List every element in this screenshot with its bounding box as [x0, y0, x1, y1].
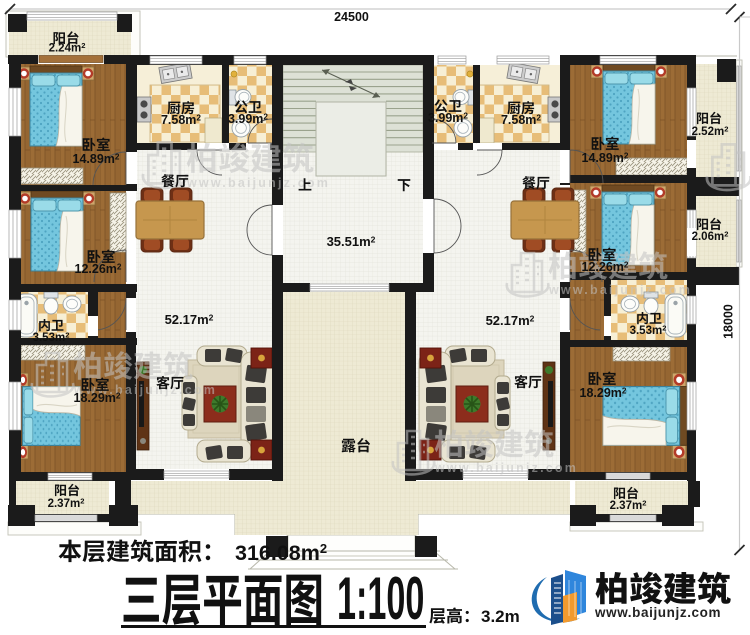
- svg-text:7.58m2: 7.58m2: [161, 113, 201, 127]
- svg-text:1:100: 1:100: [337, 566, 424, 632]
- svg-text:2.37m2: 2.37m2: [610, 499, 647, 513]
- svg-text:www.baijunjz.com: www.baijunjz.com: [594, 605, 721, 620]
- svg-text:18.29m2: 18.29m2: [74, 391, 121, 405]
- svg-text:18000: 18000: [722, 304, 736, 339]
- svg-text:12.26m2: 12.26m2: [582, 260, 629, 274]
- svg-text:52.17m2: 52.17m2: [486, 313, 535, 328]
- svg-text:www.baijunjz.com: www.baijunjz.com: [548, 283, 692, 297]
- svg-text:2.06m2: 2.06m2: [692, 230, 729, 244]
- svg-text:7.58m2: 7.58m2: [501, 113, 541, 127]
- svg-text:2.52m2: 2.52m2: [692, 125, 729, 139]
- svg-text:3.53m2: 3.53m2: [33, 331, 70, 345]
- svg-text:24500: 24500: [334, 10, 369, 24]
- svg-text:316.08m2: 316.08m2: [235, 541, 327, 565]
- svg-text:3.99m2: 3.99m2: [228, 112, 268, 126]
- svg-text:2.37m2: 2.37m2: [48, 497, 85, 511]
- svg-text:www.baijunjz.com: www.baijunjz.com: [434, 461, 578, 475]
- svg-text:14.89m2: 14.89m2: [582, 151, 629, 165]
- svg-text:3.2m: 3.2m: [481, 607, 520, 626]
- svg-text:3.99m2: 3.99m2: [428, 111, 468, 125]
- svg-text:2.24m2: 2.24m2: [49, 41, 86, 55]
- svg-text:18.29m2: 18.29m2: [580, 386, 627, 400]
- svg-text:52.17m2: 52.17m2: [165, 312, 214, 327]
- svg-text:14.89m2: 14.89m2: [73, 152, 120, 166]
- svg-text:12.26m2: 12.26m2: [75, 262, 122, 276]
- svg-text:3.53m2: 3.53m2: [630, 324, 667, 338]
- svg-text:35.51m2: 35.51m2: [327, 234, 376, 249]
